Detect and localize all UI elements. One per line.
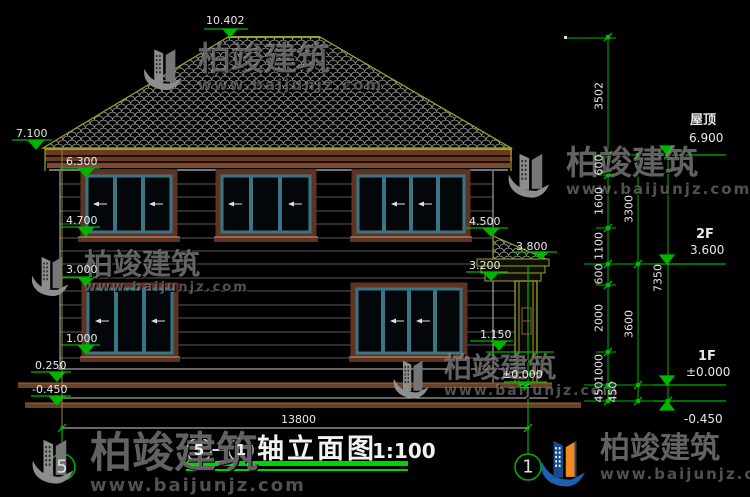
axis-bubble-1: 1 — [522, 457, 533, 478]
dim-1600: 1600 — [594, 187, 605, 215]
level-value-basement: -0.450 — [684, 413, 723, 425]
dim-600a: 600 — [594, 155, 605, 176]
elevation-label-left-3000: 3.000 — [66, 264, 98, 275]
main-roof — [43, 37, 511, 148]
level-value-1f: ±0.000 — [686, 366, 730, 378]
dim-7350: 7350 — [653, 264, 664, 292]
dim-1000: 1000 — [594, 354, 605, 382]
dim-3600: 3600 — [624, 310, 635, 338]
elevation-label-1150: 1.150 — [480, 329, 512, 340]
elevation-label-porch-floor: ±0.000 — [502, 369, 543, 380]
title-axis-end: 1 — [236, 441, 246, 459]
dim-chains-vertical — [566, 37, 668, 401]
drawing-title: 轴立面图 — [257, 436, 377, 463]
dim-chain-ticks — [564, 33, 672, 405]
elevation-label-3800: 3.800 — [516, 241, 548, 252]
elevation-label-left-m0450: -0.450 — [32, 384, 67, 395]
level-name-1f: 1F — [698, 350, 716, 363]
level-name-2f: 2F — [696, 228, 714, 241]
level-value-roof: 6.900 — [689, 132, 723, 144]
window-1f-left — [80, 285, 180, 362]
dim-450b: 450 — [608, 382, 619, 403]
dim-450a: 450 — [594, 382, 605, 403]
level-name-roof: 屋顶 — [690, 114, 716, 127]
elevation-label-left-6300: 6.300 — [66, 156, 98, 167]
elevation-label-3200: 3.200 — [469, 260, 501, 271]
window-2f-left — [78, 172, 180, 242]
window-2f-middle — [214, 172, 318, 242]
axis-bubble-5: 5 — [56, 457, 67, 478]
elevation-label-left-0250: 0.250 — [35, 360, 67, 371]
dim-3502: 3502 — [594, 82, 605, 110]
elevation-linework — [0, 0, 750, 497]
window-2f-right — [350, 172, 472, 242]
axis-line-5 — [49, 150, 75, 480]
dim-600b: 600 — [594, 264, 605, 285]
eave-cornice — [45, 148, 512, 171]
porch-door-panel — [522, 308, 531, 334]
elevation-label-left-1000: 1.000 — [66, 333, 98, 344]
elevation-drawing-canvas: 柏竣建筑 www.baijunjz.com 柏竣建筑 www.baijunjz.… — [0, 0, 750, 497]
title-axis-start: 5 — [194, 441, 204, 459]
elevation-label-4500: 4.500 — [469, 216, 501, 227]
elevation-label-left-4700: 4.700 — [66, 215, 98, 226]
dim-1100: 1100 — [594, 232, 605, 260]
dim-3300: 3300 — [624, 195, 635, 223]
dim-2000: 2000 — [594, 304, 605, 332]
elevation-label-left-7100: 7.100 — [16, 128, 48, 139]
level-value-2f: 3.600 — [690, 244, 724, 256]
dim-13800: 13800 — [281, 414, 316, 425]
elevation-label-ridge: 10.402 — [206, 15, 245, 26]
window-1f-right — [349, 285, 469, 362]
ground-lines — [18, 369, 581, 408]
drawing-scale: 1:100 — [372, 441, 436, 461]
